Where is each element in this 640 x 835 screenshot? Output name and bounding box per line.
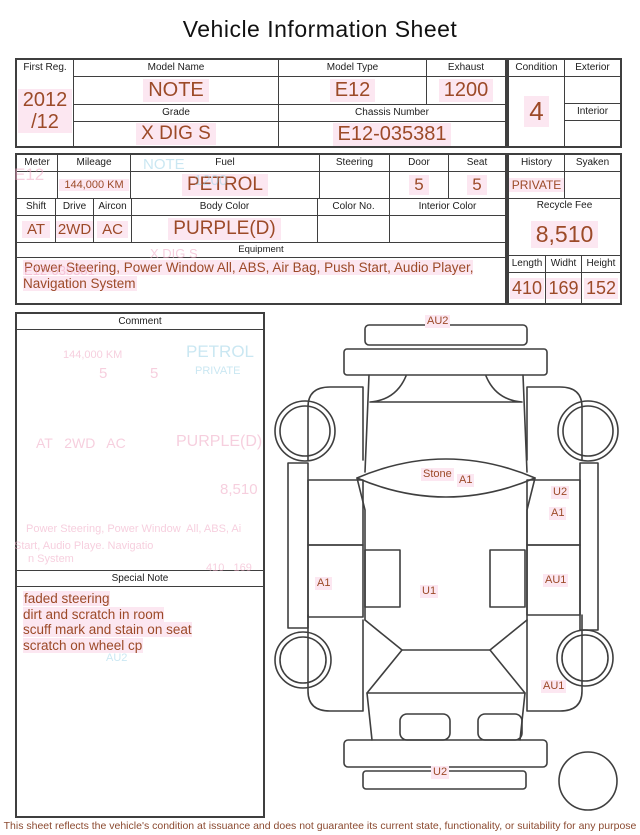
- ghost-text: NOTE: [143, 157, 185, 173]
- left-front-door-shape: [308, 480, 363, 545]
- ghost-text: 8,510: [220, 482, 258, 498]
- ghost-text: Start, Audio Playe. Navigatio: [14, 541, 153, 553]
- left-tail-lamp-shape: [400, 714, 450, 740]
- ghost-text: 5: [150, 366, 158, 382]
- windshield-shape: [357, 459, 535, 497]
- body-side-lines: [357, 478, 535, 620]
- right-rear-door-shape: [527, 545, 580, 615]
- right-door-window-shape: [490, 550, 525, 607]
- right-front-door-shape: [527, 480, 580, 545]
- left-rear-door-shape: [308, 545, 363, 617]
- right-rocker-shape: [580, 463, 598, 630]
- front-panel-shape: [344, 349, 547, 375]
- right-tail-lamp-shape: [478, 714, 522, 740]
- bonnet-side-lines: [365, 375, 527, 472]
- ghost-text: 1200: [194, 173, 227, 189]
- left-rear-fender-shape: [308, 615, 363, 711]
- ghost-text: PETROL: [186, 343, 254, 361]
- ghost-text: PRIVATE: [195, 366, 240, 378]
- rear-bumper-shape: [344, 740, 547, 767]
- c-pillar-lines: [365, 620, 527, 650]
- left-door-window-shape: [365, 550, 400, 607]
- ghost-text: E12: [14, 166, 44, 184]
- rear-window-shape: [367, 650, 525, 693]
- rear-panel-lines: [367, 693, 525, 740]
- ghost-text: PURPLE(D): [176, 434, 262, 451]
- front-left-wheel: [275, 401, 335, 461]
- ghost-text: AU2: [106, 653, 127, 665]
- bonnet-front-line: [370, 376, 522, 402]
- ghost-text: 5: [99, 366, 107, 382]
- rear-bumper-strip-shape: [363, 771, 526, 789]
- rear-left-wheel: [275, 632, 331, 688]
- right-rear-fender-shape: [527, 615, 582, 711]
- ghost-text: n System: [28, 554, 74, 566]
- ghost-text: E12-035381: [24, 264, 95, 278]
- front-right-wheel: [558, 401, 618, 461]
- ghost-text: Power Steering, Power Window All, ABS, A…: [26, 524, 241, 536]
- ghost-text: 144,000 KM: [63, 350, 122, 362]
- ghost-text: AT 2WD AC: [36, 436, 126, 451]
- ghost-text: X DIG S: [150, 247, 198, 261]
- spare-wheel: [559, 752, 617, 810]
- rear-right-wheel: [557, 630, 613, 686]
- left-rocker-shape: [288, 463, 308, 628]
- car-diagram: [268, 310, 640, 815]
- right-front-fender-shape: [527, 387, 582, 460]
- ghost-text: 410 169: [206, 563, 252, 575]
- front-bumper-shape: [365, 325, 527, 345]
- left-front-fender-shape: [308, 387, 363, 460]
- vehicle-information-sheet: E12NOTE1200X DIG SE12-035381144,000 KM55…: [0, 0, 640, 835]
